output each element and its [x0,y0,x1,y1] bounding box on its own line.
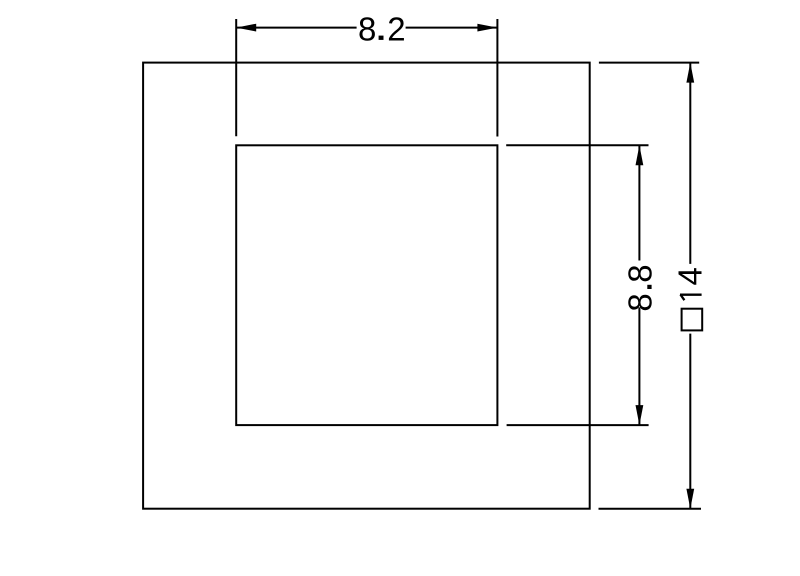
svg-text:8: 8 [622,293,659,311]
svg-text:4: 4 [672,267,709,285]
svg-text:2: 2 [387,10,405,47]
svg-text:8: 8 [622,264,659,282]
svg-text:8: 8 [358,10,376,47]
